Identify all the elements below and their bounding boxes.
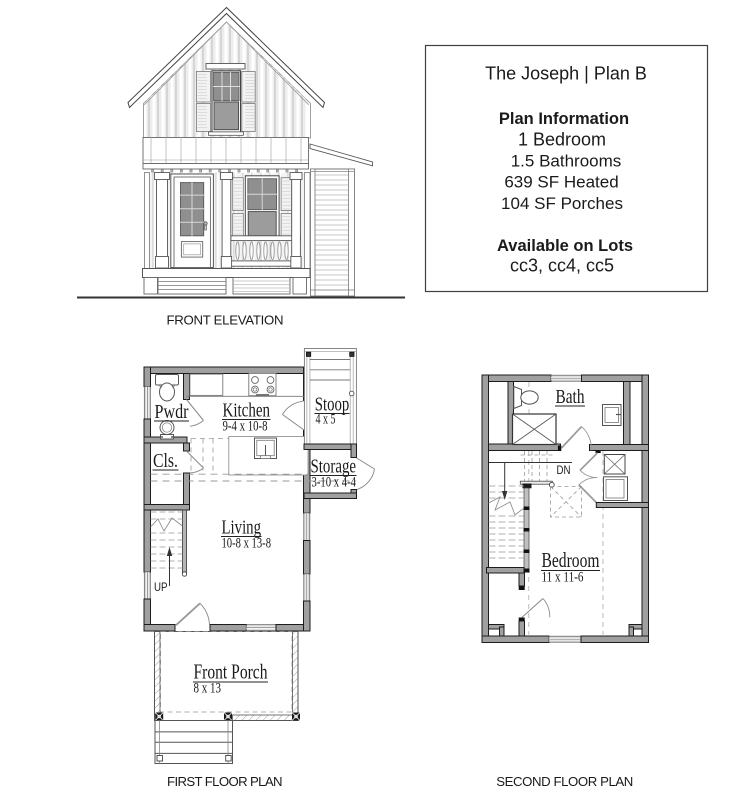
svg-text:Plan Information: Plan Information [499,110,629,128]
svg-text:Bedroom: Bedroom [542,548,600,572]
svg-text:1 Bedroom: 1 Bedroom [518,130,606,150]
svg-text:FRONT ELEVATION: FRONT ELEVATION [167,313,284,328]
svg-text:104 SF Porches: 104 SF Porches [501,194,623,213]
svg-text:11 x 11-6: 11 x 11-6 [542,570,584,586]
svg-text:SECOND FLOOR PLAN: SECOND FLOOR PLAN [496,774,633,789]
svg-text:1.5 Bathrooms: 1.5 Bathrooms [511,152,622,171]
svg-text:Cls.: Cls. [153,450,178,472]
svg-text:639 SF Heated: 639 SF Heated [504,173,618,192]
svg-text:DN: DN [557,465,571,477]
svg-text:Pwdr: Pwdr [155,401,189,423]
svg-text:4 x 5: 4 x 5 [316,412,336,428]
svg-text:8 x 13: 8 x 13 [194,681,222,697]
svg-text:The Joseph | Plan B: The Joseph | Plan B [485,64,647,84]
svg-text:cc3, cc4, cc5: cc3, cc4, cc5 [510,256,614,276]
svg-text:FIRST FLOOR PLAN: FIRST FLOOR PLAN [167,774,282,789]
svg-text:UP: UP [154,580,168,594]
svg-text:Bath: Bath [556,386,585,408]
svg-text:10-8 x 13-8: 10-8 x 13-8 [222,536,272,552]
svg-text:9-4 x 10-8: 9-4 x 10-8 [223,419,268,435]
svg-text:Available on Lots: Available on Lots [497,237,633,255]
svg-text:3-10 x 4-4: 3-10 x 4-4 [312,475,357,491]
